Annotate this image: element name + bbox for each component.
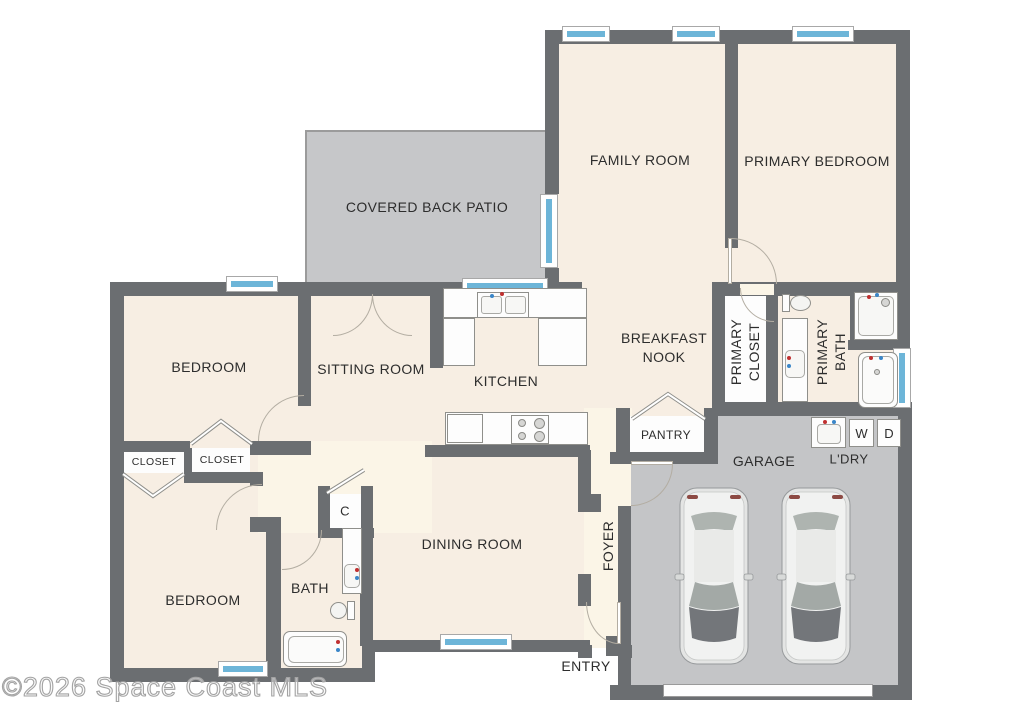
door-leaf	[631, 461, 673, 465]
sliding-glass-door	[540, 194, 558, 268]
wall	[430, 282, 443, 368]
garage-door	[663, 684, 873, 697]
shower	[854, 292, 898, 340]
bifold-door	[630, 390, 708, 422]
window	[440, 634, 512, 650]
label-closet-right: CLOSET	[200, 454, 244, 466]
bifold-door	[190, 418, 254, 446]
label-primary-closet: PRIMARY CLOSET	[727, 306, 763, 398]
bathtub	[283, 631, 347, 667]
label-closet-c: C	[340, 504, 350, 519]
closet-c-door	[324, 466, 368, 496]
floor-plan: W D FAMILY ROOM PRIMARY BEDROOM COVERED …	[0, 0, 1024, 724]
toilet	[790, 295, 811, 311]
wall	[578, 645, 592, 658]
wall	[110, 441, 190, 452]
door-leaf	[728, 238, 732, 284]
wall	[584, 494, 601, 512]
label-garage: GARAGE	[733, 453, 795, 469]
window	[672, 26, 720, 42]
refrigerator	[447, 414, 483, 443]
wall	[545, 30, 559, 194]
wall	[616, 408, 630, 458]
wall	[725, 44, 738, 248]
toilet	[330, 602, 347, 619]
label-covered-back-patio: COVERED BACK PATIO	[346, 199, 508, 215]
toilet-tank	[347, 601, 355, 620]
bathtub	[858, 352, 898, 408]
laundry-sink	[811, 417, 846, 448]
window	[226, 276, 278, 292]
label-primary-bath: PRIMARY BATH	[813, 306, 849, 398]
label-pantry: PANTRY	[641, 428, 691, 442]
label-laundry: L'DRY	[830, 452, 869, 467]
bifold-door	[122, 472, 186, 500]
label-bath: BATH	[291, 580, 329, 596]
kitchen-counter	[538, 318, 587, 366]
faucet	[787, 364, 791, 368]
label-breakfast-nook: BREAKFAST NOOK	[604, 329, 724, 367]
label-closet-left: CLOSET	[132, 456, 176, 468]
stove	[511, 415, 549, 444]
wall	[184, 448, 192, 474]
label-bedroom-upper: BEDROOM	[171, 359, 246, 375]
washer: W	[849, 419, 874, 447]
faucet	[787, 356, 791, 360]
car	[677, 486, 751, 666]
shower-head	[881, 298, 890, 307]
mls-watermark: ©2026 Space Coast MLS	[2, 672, 328, 703]
wall	[425, 445, 590, 457]
label-bedroom-lower: BEDROOM	[165, 592, 240, 608]
toilet-tank	[782, 294, 790, 312]
label-dining-room: DINING ROOM	[422, 536, 523, 552]
label-foyer: FOYER	[599, 521, 617, 571]
label-family-room: FAMILY ROOM	[590, 152, 690, 168]
faucet	[355, 576, 359, 580]
label-kitchen: KITCHEN	[474, 373, 538, 389]
dryer: D	[877, 419, 901, 447]
wall	[298, 296, 311, 406]
label-primary-bedroom: PRIMARY BEDROOM	[744, 153, 890, 169]
label-sitting-room: SITTING ROOM	[317, 361, 424, 377]
faucet	[355, 568, 359, 572]
kitchen-counter	[443, 318, 475, 366]
entry-door-leaf	[617, 602, 621, 644]
kitchen-sink	[477, 292, 529, 318]
car	[779, 486, 853, 666]
window	[792, 26, 854, 42]
wall	[250, 441, 311, 455]
label-entry: ENTRY	[561, 658, 610, 674]
wall	[266, 517, 281, 668]
window	[562, 26, 610, 42]
